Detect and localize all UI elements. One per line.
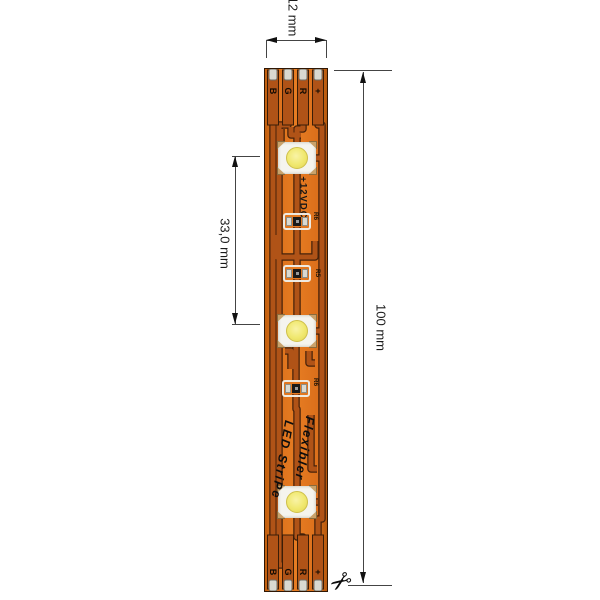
arrow-up-icon <box>232 156 238 167</box>
extension-line <box>326 40 327 58</box>
solder-pad <box>299 580 307 591</box>
led-module <box>278 142 316 174</box>
pad-label-bottom-g: G <box>283 567 293 577</box>
led-phosphor <box>286 491 308 513</box>
width-dimension-label: 12 mm <box>286 0 301 42</box>
pad-label-top-plus: + <box>313 86 323 96</box>
spacing-dimension-label: 33,0 mm <box>218 214 233 274</box>
solder-pad <box>314 580 322 591</box>
resistor-label: R6 <box>311 374 319 390</box>
pad-label-top-g: G <box>283 86 293 96</box>
solder-pad <box>314 69 322 80</box>
smd-resistor <box>283 265 311 282</box>
pad-label-top-b: B <box>268 86 278 96</box>
led-module <box>278 315 316 347</box>
solder-pad <box>269 69 277 80</box>
resistor-label: R6 <box>311 208 319 224</box>
smd-resistor <box>282 380 310 397</box>
diagram-canvas: 12 mm 100 mm 33,0 mm <box>0 0 600 600</box>
solder-pad <box>299 69 307 80</box>
resistor-label: R5 <box>313 265 321 281</box>
pad-label-top-r: R <box>298 86 308 96</box>
arrow-right-icon <box>315 37 326 43</box>
solder-pad <box>269 580 277 591</box>
led-phosphor <box>286 147 308 169</box>
arrow-down-icon <box>232 313 238 324</box>
arrow-left-icon <box>266 37 277 43</box>
length-dimension-label: 100 mm <box>374 298 389 358</box>
dimension-line <box>363 72 364 583</box>
pad-label-bottom-r: R <box>298 567 308 577</box>
smd-resistor <box>283 213 311 230</box>
extension-line <box>266 40 267 58</box>
extension-line <box>334 70 392 71</box>
arrow-down-icon <box>360 572 366 583</box>
pad-label-bottom-plus: + <box>313 567 323 577</box>
led-strip: B G R + B G R + +12VDC <box>264 68 328 592</box>
extension-line <box>232 324 260 325</box>
dimension-line <box>235 156 236 324</box>
led-phosphor <box>286 320 308 342</box>
solder-pad <box>284 69 292 80</box>
scissors-icon: ✂ <box>325 565 358 599</box>
solder-pad <box>284 580 292 591</box>
pad-label-bottom-b: B <box>268 567 278 577</box>
arrow-up-icon <box>360 72 366 83</box>
